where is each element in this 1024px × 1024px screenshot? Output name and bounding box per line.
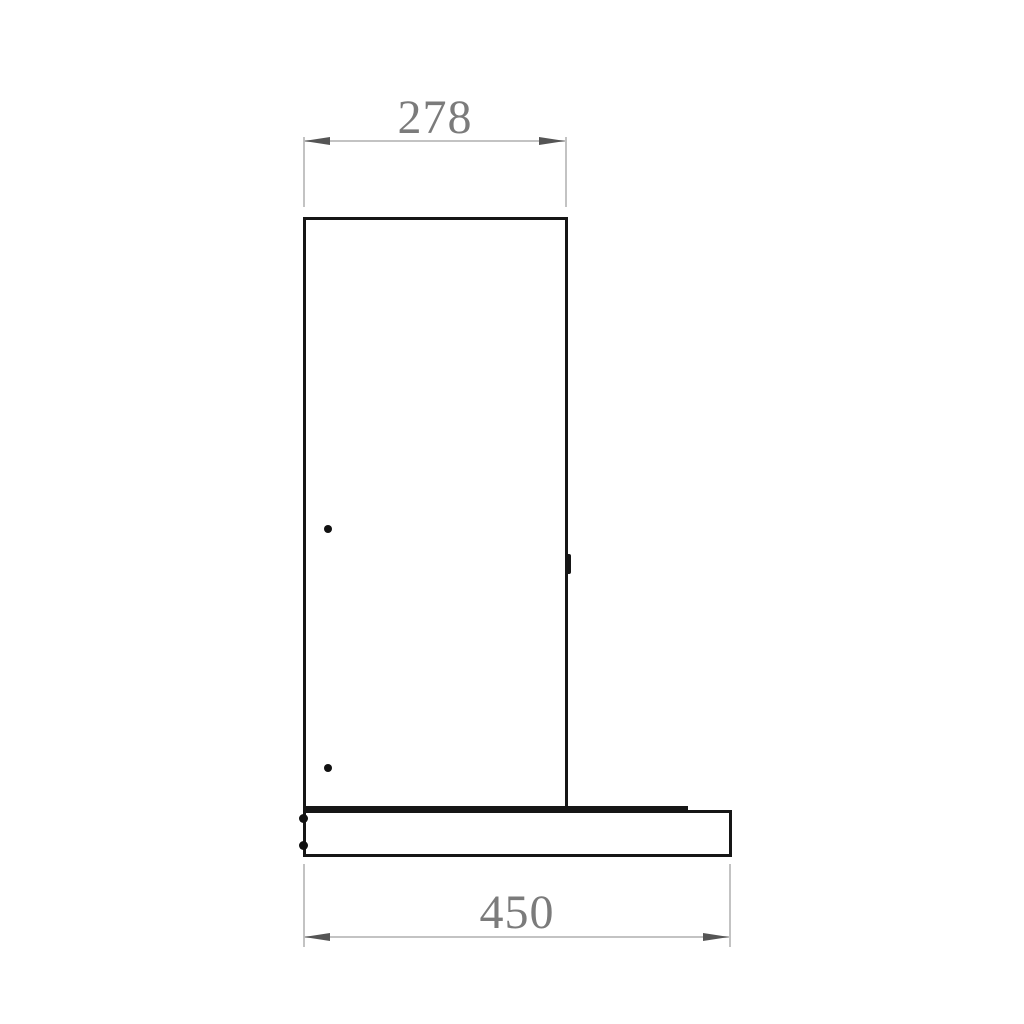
- base-front-knob-upper: [299, 814, 308, 823]
- right-edge-seam-mark: [566, 554, 571, 574]
- top-dimension-label: 278: [303, 94, 567, 142]
- bottom-dimension-label: 450: [303, 889, 731, 937]
- hood-base-outline: [303, 810, 732, 857]
- drawing-canvas: 278 450: [0, 0, 1024, 1024]
- mounting-dot-lower: [324, 764, 332, 772]
- top-dimension-extension-line-right: [565, 137, 567, 207]
- hood-body-outline: [303, 217, 568, 807]
- mounting-dot-upper: [324, 525, 332, 533]
- base-front-knob-lower: [299, 841, 308, 850]
- top-dimension-extension-line-left: [303, 137, 305, 207]
